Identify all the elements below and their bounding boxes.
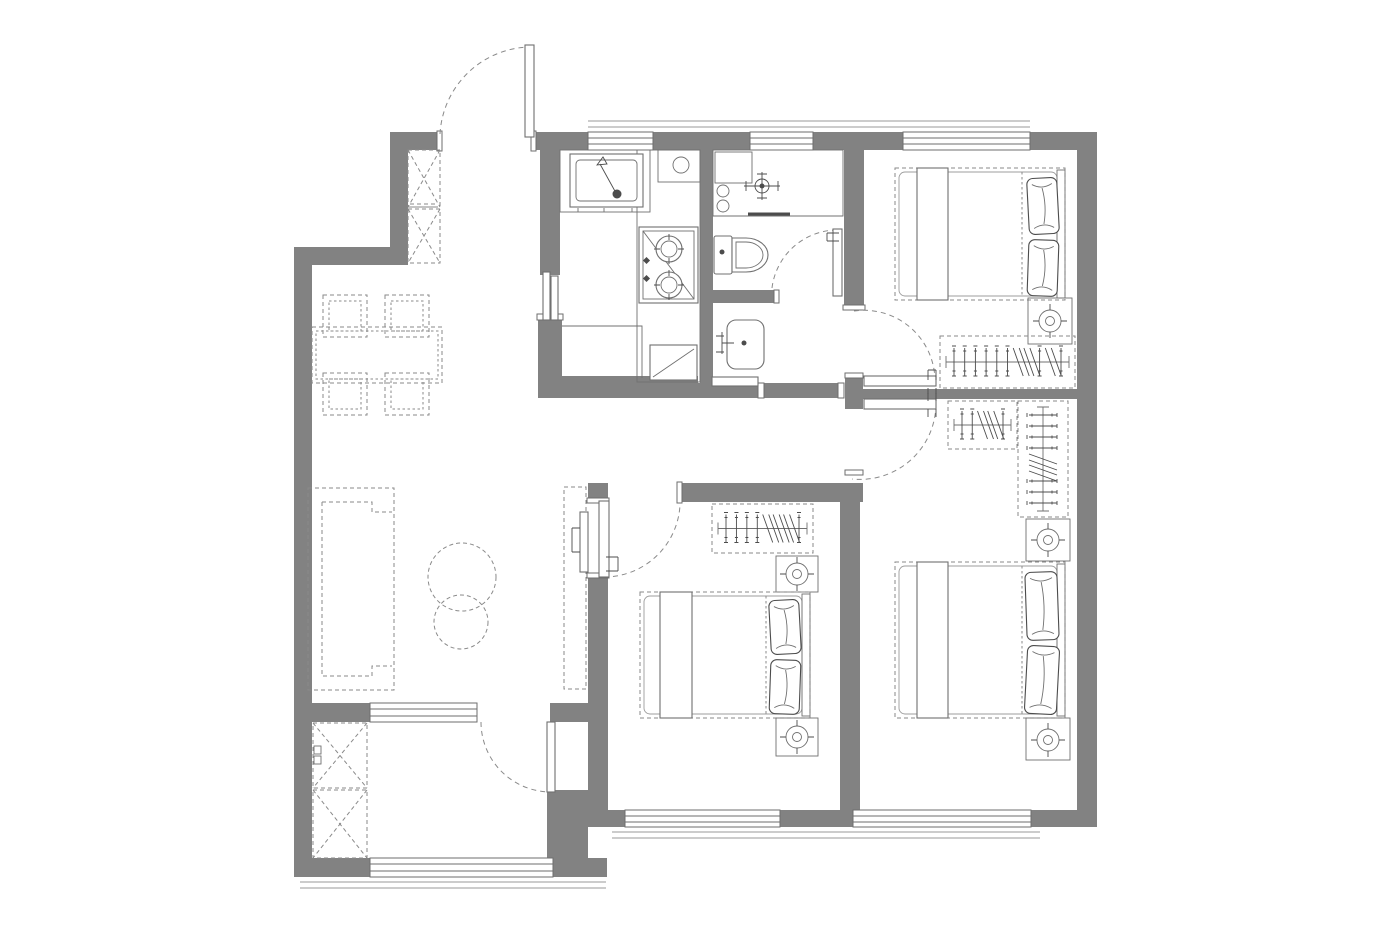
wall-segment: [764, 383, 838, 398]
coffee-table-large: [428, 543, 496, 611]
pillow: [1025, 571, 1059, 640]
lamp-icon: [1031, 723, 1065, 757]
dining-chair: [323, 373, 367, 415]
tv: [572, 512, 588, 572]
balcony-door: [481, 722, 555, 792]
dining-chair: [385, 373, 429, 415]
wall-segment: [653, 132, 750, 150]
toilet: [714, 236, 768, 274]
laundry-unit: [715, 152, 752, 183]
wardrobe: [712, 504, 813, 553]
balcony-window: [370, 858, 553, 877]
bedroom-top-right-window: [903, 132, 1030, 150]
wall-segment: [680, 483, 863, 502]
bathroom-door-arc: [772, 230, 838, 288]
bathroom-door-leaf: [833, 229, 842, 296]
dining-table: [312, 327, 442, 383]
living-balcony-window: [370, 703, 477, 722]
wash-niche-panel: [712, 377, 758, 386]
wardrobe: [948, 401, 1017, 449]
wall-segment: [844, 150, 864, 310]
wall-segment: [540, 150, 560, 275]
bathroom-door: [772, 229, 842, 296]
wall-segment: [845, 377, 863, 409]
bedroom-bottom-right-window: [853, 810, 1031, 827]
kitchen: [560, 150, 700, 382]
wardrobe: [1018, 401, 1068, 517]
kitchen-counter-south: [562, 326, 642, 378]
wall-segment: [547, 790, 588, 860]
wall-segment: [813, 132, 903, 150]
kitchen-window: [588, 132, 653, 150]
wall-segment: [294, 703, 370, 722]
wall-segment: [533, 132, 588, 150]
sofa: [308, 488, 394, 690]
bathroom: [713, 150, 843, 369]
bedroom-bottom-middle: [640, 504, 818, 756]
kitchen-sliding-door: [543, 272, 558, 320]
wall-segment: [1031, 810, 1097, 827]
stove: [639, 227, 698, 303]
wall-segment: [700, 290, 778, 303]
floor-plan-page: [0, 0, 1400, 933]
wall-segment: [390, 132, 408, 247]
pillow: [1027, 177, 1060, 234]
bathroom-window: [750, 132, 813, 150]
lamp-icon: [1033, 304, 1067, 338]
pillow: [769, 599, 802, 654]
wash-basin: [716, 320, 764, 369]
kitchen-corner-unit: [658, 150, 700, 182]
wall-segment: [1077, 132, 1097, 827]
balcony-storage-cabinet-lower: [313, 790, 367, 858]
wall-segment: [780, 810, 853, 827]
balcony-cabinet-handles: [314, 746, 321, 764]
pillow: [1024, 645, 1060, 715]
wall-segment: [588, 577, 608, 827]
bedroom-bottom-middle-window: [625, 810, 780, 827]
wall-segment: [294, 247, 312, 877]
bedroom-bottom-middle-door: [599, 501, 680, 577]
coffee-table-small: [434, 595, 488, 649]
pillow: [769, 659, 801, 714]
entry-door-leaf: [525, 45, 534, 137]
balcony-storage-cabinet: [313, 723, 367, 788]
entry-door: [440, 45, 534, 137]
shoe-cabinet-lower: [408, 209, 440, 263]
lamp-icon: [780, 557, 814, 591]
entry-door-arc: [440, 47, 529, 134]
kitchen-sink: [570, 154, 643, 212]
kitchen-base-unit: [650, 345, 697, 380]
wall-segment: [863, 389, 1077, 399]
floor-plan-drawing: [0, 0, 1400, 933]
bedroom-top-right-door: [854, 310, 936, 394]
wall-segment: [840, 502, 860, 810]
bedroom-top-right: [895, 168, 1075, 388]
wall-segment: [700, 150, 713, 397]
bedroom-bottom-right-door: [852, 393, 936, 479]
shoe-cabinet: [408, 150, 440, 207]
bedroom-bottom-right: [895, 401, 1070, 760]
lamp-icon: [1031, 523, 1065, 557]
lamp-icon: [780, 720, 814, 754]
pillow: [1027, 239, 1059, 296]
dining-chair: [323, 295, 367, 337]
wall-segment: [294, 858, 370, 877]
faucet-icon: [744, 172, 780, 200]
wall-segment: [553, 858, 607, 877]
